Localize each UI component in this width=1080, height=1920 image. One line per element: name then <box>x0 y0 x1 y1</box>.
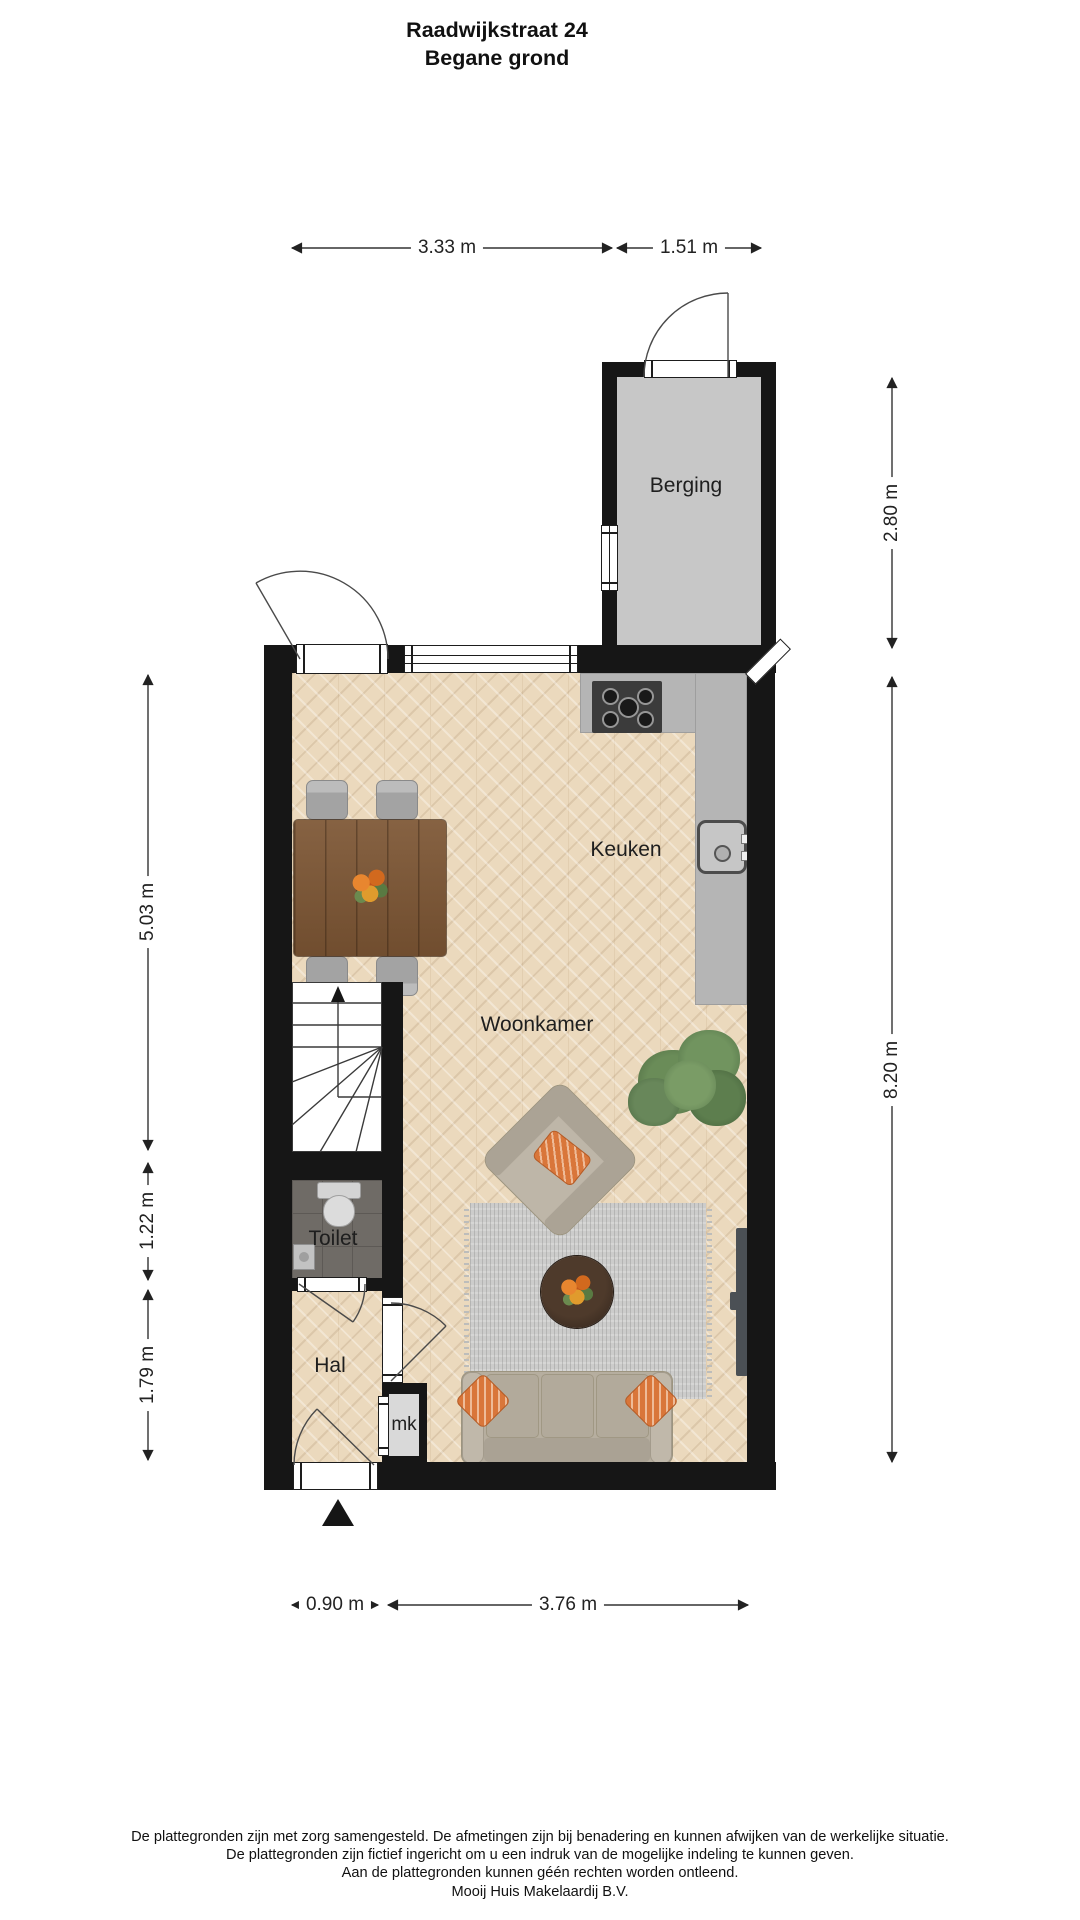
kitchen-sink-icon <box>697 820 747 874</box>
berging-floor <box>617 377 761 645</box>
burner-icon <box>618 697 639 718</box>
wall <box>747 645 775 1490</box>
dim-bottom-hal: 0.90 m <box>299 1594 371 1616</box>
burner-icon <box>602 711 619 728</box>
window-glass-line <box>405 655 577 656</box>
disclaimer-line2: De plattegronden zijn fictief ingericht … <box>0 1846 1080 1864</box>
window-glass-line <box>405 663 577 664</box>
sofa-icon <box>462 1372 672 1464</box>
dim-top-berging: 1.51 m <box>653 237 725 259</box>
drain-icon <box>714 845 731 862</box>
front-door-opening <box>293 1462 378 1490</box>
stairs-icon <box>292 982 382 1152</box>
hal-woonkamer-door-opening <box>382 1297 403 1383</box>
tv-mount <box>730 1292 738 1310</box>
window-icon <box>404 645 578 673</box>
coffee-table-flowers-icon <box>557 1272 597 1310</box>
berging-door-opening <box>644 360 737 378</box>
wall <box>602 362 617 645</box>
sofa-backrest <box>484 1438 650 1462</box>
wall <box>292 1152 403 1180</box>
dining-chair-icon <box>306 780 348 820</box>
north-arrow-icon <box>322 1499 354 1526</box>
mk-door-opening <box>378 1396 389 1456</box>
table-flowers-icon <box>348 866 392 908</box>
dim-left-toilet: 1.22 m <box>137 1185 159 1257</box>
room-label-berging: Berging <box>650 474 722 498</box>
dim-right-main: 8.20 m <box>881 1034 903 1106</box>
plant-icon <box>628 1030 752 1142</box>
dim-left-hal: 1.79 m <box>137 1339 159 1411</box>
dim-top-main: 3.33 m <box>411 237 483 259</box>
room-label-mk: mk <box>391 1414 416 1436</box>
disclaimer-line3: Aan de plattegronden kunnen géén rechten… <box>0 1864 1080 1882</box>
wall <box>264 645 292 1490</box>
disclaimer-line1: De plattegronden zijn met zorg samengest… <box>0 1828 1080 1846</box>
dim-right-berging: 2.80 m <box>881 477 903 549</box>
berging-window-icon <box>601 525 618 591</box>
window-glass-line <box>609 526 610 590</box>
floorplan-canvas: Raadwijkstraat 24 Begane grond <box>0 0 1080 1920</box>
room-label-hal: Hal <box>314 1354 346 1378</box>
toilet-door-opening <box>297 1277 367 1292</box>
plan-title: Raadwijkstraat 24 Begane grond <box>406 16 588 72</box>
burner-icon <box>637 711 654 728</box>
room-label-toilet: Toilet <box>308 1227 357 1251</box>
wall <box>761 362 776 645</box>
dim-bottom-main: 3.76 m <box>532 1594 604 1616</box>
basin-bowl <box>299 1252 309 1262</box>
stove-icon <box>592 681 662 733</box>
sofa-cushion <box>541 1374 594 1438</box>
dining-chair-icon <box>376 780 418 820</box>
plant-leaves <box>664 1060 716 1110</box>
room-label-keuken: Keuken <box>590 838 661 862</box>
burner-icon <box>637 688 654 705</box>
toilet-fixture-icon <box>323 1195 355 1227</box>
disclaimer-line4: Mooij Huis Makelaardij B.V. <box>0 1883 1080 1901</box>
disclaimer: De plattegronden zijn met zorg samengest… <box>0 1828 1080 1901</box>
plan-title-floor: Begane grond <box>406 44 588 72</box>
room-label-woonkamer: Woonkamer <box>481 1013 594 1037</box>
back-door-opening <box>296 644 388 674</box>
burner-icon <box>602 688 619 705</box>
plan-title-address: Raadwijkstraat 24 <box>406 16 588 44</box>
dim-left-woonkamer: 5.03 m <box>137 876 159 948</box>
